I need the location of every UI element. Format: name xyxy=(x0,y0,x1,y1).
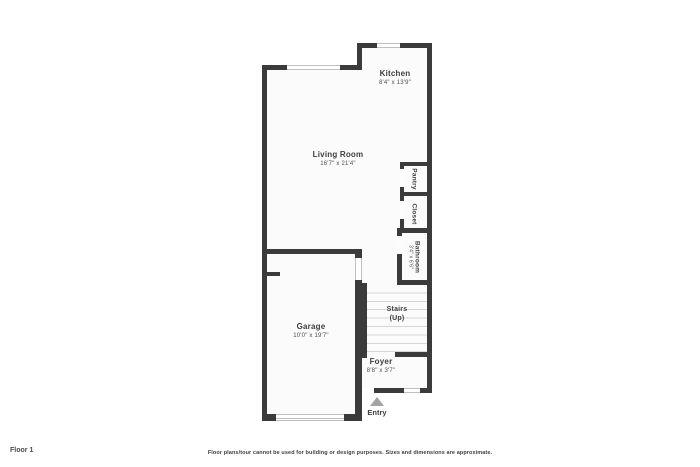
bathroom-top-wall xyxy=(397,228,432,233)
kitchen-label: Kitchen 8'4" x 13'9" xyxy=(360,69,430,88)
bathroom-name: Bathroom xyxy=(414,241,421,273)
stairs-label: Stairs (Up) xyxy=(362,306,432,324)
bathroom-door-gap xyxy=(397,236,402,254)
closet-door-gap xyxy=(400,201,404,219)
pantry-top-wall xyxy=(400,162,432,166)
living-room-label: Living Room 16'7" x 21'4" xyxy=(288,150,388,169)
garage-bottom-wall xyxy=(262,414,276,421)
garage-label: Garage 10'0" x 19'7" xyxy=(271,322,351,341)
foyer-label: Foyer 8'8" x 3'7" xyxy=(346,357,416,376)
garage-door-opening xyxy=(355,258,362,280)
pantry-label: Pantry xyxy=(411,168,418,189)
garage-right-wall xyxy=(355,280,362,421)
garage-door xyxy=(276,414,344,421)
garage-top-wall xyxy=(262,249,362,254)
kitchen-window xyxy=(377,43,400,48)
garage-dims: 10'0" x 19'7" xyxy=(271,333,351,341)
pantry-name: Pantry xyxy=(411,168,418,189)
bathroom-dims: 3'4" x 6'6" xyxy=(408,241,414,273)
garage-right-wall xyxy=(355,249,362,258)
closet-name: Closet xyxy=(411,203,418,224)
right-exterior-wall xyxy=(427,43,432,393)
floor-plan: Kitchen 8'4" x 13'9" Living Room 16'7" x… xyxy=(0,0,700,467)
stairs-name: Stairs xyxy=(362,306,432,315)
bathroom-label: Bathroom 3'4" x 6'6" xyxy=(408,241,421,273)
disclaimer-text: Floor plans/tour cannot be used for buil… xyxy=(0,450,700,456)
living-room-name: Living Room xyxy=(288,150,388,160)
closet-label: Closet xyxy=(411,203,418,224)
pantry-closet-divider xyxy=(400,192,432,196)
garage-name: Garage xyxy=(271,322,351,332)
living-room-dims: 16'7" x 21'4" xyxy=(288,161,388,169)
foyer-bottom-wall xyxy=(420,388,432,393)
foyer-window xyxy=(404,388,420,393)
kitchen-dims: 8'4" x 13'9" xyxy=(360,80,430,88)
garage-wall-stub xyxy=(262,272,280,276)
living-room-top-wall xyxy=(262,65,287,70)
stairs-direction: (Up) xyxy=(362,315,432,324)
foyer-bottom-wall xyxy=(374,388,404,393)
living-room-window xyxy=(287,65,340,70)
entry-arrow-icon xyxy=(370,397,384,406)
left-exterior-wall xyxy=(262,65,267,421)
pantry-door-gap xyxy=(400,169,404,187)
entry-label: Entry xyxy=(357,408,397,417)
kitchen-top-wall xyxy=(357,43,377,48)
kitchen-name: Kitchen xyxy=(360,69,430,79)
foyer-name: Foyer xyxy=(346,357,416,367)
foyer-dims: 8'8" x 3'7" xyxy=(346,368,416,376)
